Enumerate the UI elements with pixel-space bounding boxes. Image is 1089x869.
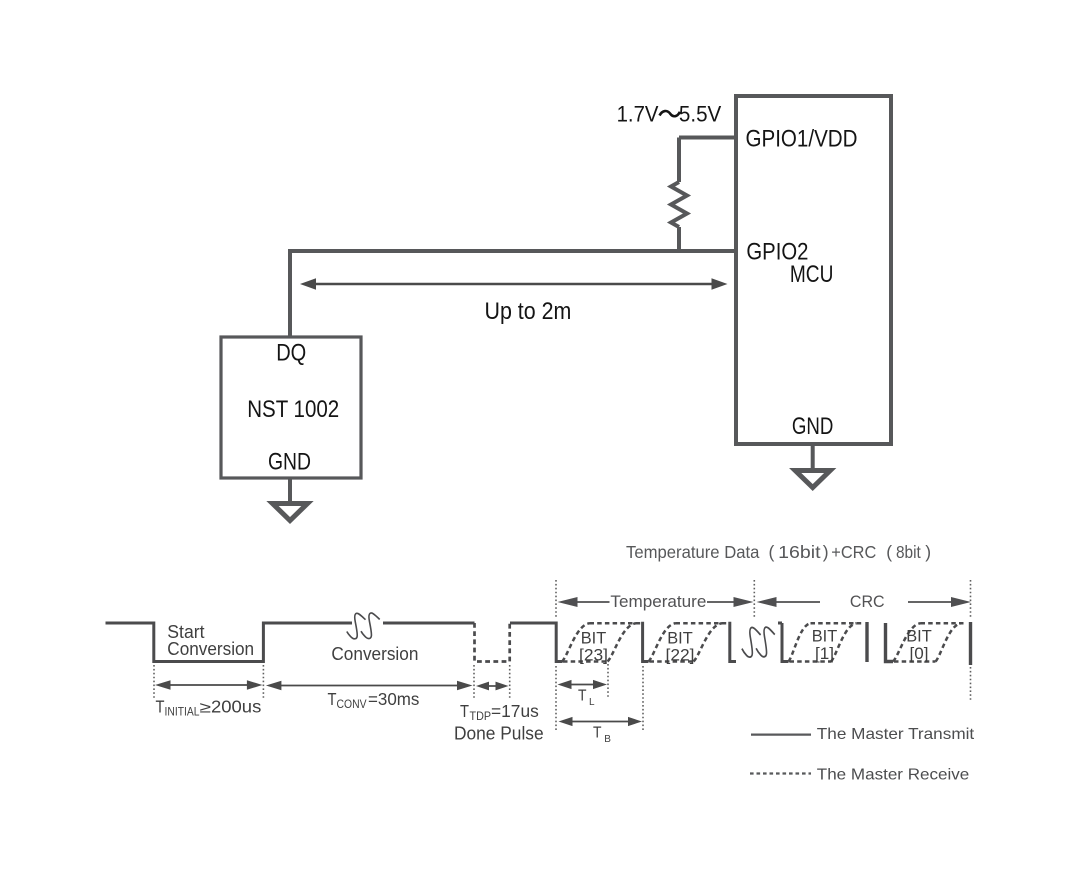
svg-text:B: B bbox=[604, 734, 611, 745]
svg-text:=17us: =17us bbox=[491, 701, 539, 721]
svg-text:The Master Receive: The Master Receive bbox=[817, 766, 970, 783]
svg-text:200us: 200us bbox=[211, 697, 262, 717]
svg-text:CRC: CRC bbox=[850, 593, 885, 611]
svg-text:T: T bbox=[593, 725, 602, 742]
svg-text:GND: GND bbox=[268, 449, 311, 476]
svg-text:[23]: [23] bbox=[579, 647, 608, 665]
svg-text:T: T bbox=[328, 689, 337, 709]
svg-text:=30ms: =30ms bbox=[368, 689, 420, 709]
svg-text:T: T bbox=[578, 688, 587, 705]
svg-text:[22]: [22] bbox=[666, 647, 695, 665]
svg-text:The Master Transmit: The Master Transmit bbox=[817, 726, 975, 743]
svg-text:Temperature Data(16bit)+CRC(8b: Temperature Data(16bit)+CRC(8bit) bbox=[626, 542, 931, 562]
svg-text:NST 1002: NST 1002 bbox=[247, 396, 339, 423]
svg-text:MCU: MCU bbox=[790, 261, 834, 288]
svg-text:GPIO1/VDD: GPIO1/VDD bbox=[746, 126, 858, 153]
svg-text:GND: GND bbox=[792, 413, 834, 440]
svg-text:T: T bbox=[460, 701, 469, 721]
svg-text:Conversion: Conversion bbox=[331, 644, 418, 664]
svg-text:BIT: BIT bbox=[581, 629, 607, 647]
svg-text:BIT: BIT bbox=[906, 627, 932, 645]
svg-text:L: L bbox=[589, 697, 595, 708]
svg-text:BIT: BIT bbox=[812, 627, 838, 645]
svg-text:Temperature: Temperature bbox=[610, 593, 706, 611]
svg-text:≥: ≥ bbox=[200, 700, 212, 717]
svg-text:T: T bbox=[156, 697, 165, 717]
svg-text:CONV: CONV bbox=[337, 697, 367, 711]
svg-text:Done Pulse: Done Pulse bbox=[454, 724, 544, 744]
svg-text:DQ: DQ bbox=[276, 340, 306, 367]
svg-text:TDP: TDP bbox=[470, 709, 492, 723]
svg-text:Up to 2m: Up to 2m bbox=[485, 298, 572, 325]
svg-text:BIT: BIT bbox=[667, 629, 693, 647]
svg-text:[0]: [0] bbox=[910, 645, 929, 663]
svg-text:[1]: [1] bbox=[815, 645, 834, 663]
svg-text:Conversion: Conversion bbox=[167, 639, 254, 659]
svg-text:5.5V: 5.5V bbox=[679, 102, 721, 127]
svg-text:INITIAL: INITIAL bbox=[165, 705, 200, 719]
svg-text:1.7V: 1.7V bbox=[617, 102, 659, 127]
